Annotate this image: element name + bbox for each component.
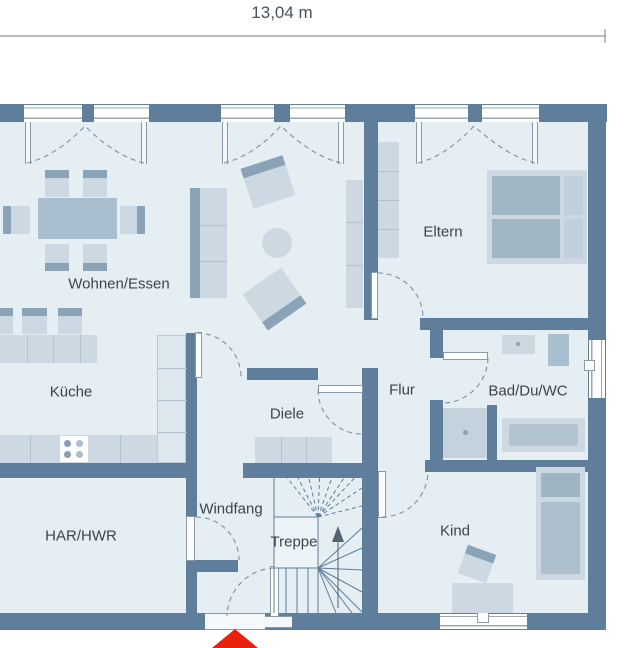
wall-diele-treppe [243,463,364,478]
window-jamb [338,122,344,164]
stove [60,436,88,462]
tall-cabinet-column [157,335,186,463]
bar-stool [22,308,47,334]
door-leaf-bad [443,352,488,360]
coffee-table [262,228,292,258]
sink [502,335,535,354]
door-leaf-eltern [371,272,378,319]
dining-chair [45,170,69,197]
desk [452,583,513,613]
sideboard [255,437,332,463]
door-leaf-diele [318,385,363,393]
entrance-door [205,613,265,630]
door-leaf-kind [378,471,386,518]
wall-shower-stub [487,405,497,462]
bar-stool [0,308,13,334]
window-jamb [416,122,422,164]
wall-flur-treppe [362,368,378,617]
door-leaf-kueche [195,332,202,378]
room-label-bad: Bad/Du/WC [488,383,567,400]
wall-bad-left-upper [430,318,443,358]
wall-eltern-bad [420,318,588,330]
toilet [548,334,569,366]
wall-bad-left-lower [430,400,443,462]
dimension-line [0,29,606,43]
floor-plan: 13,04 m [0,0,636,648]
cabinet [346,180,363,308]
dining-chair [83,170,107,197]
room-label-windfang: Windfang [199,501,262,518]
wall-har-windfang-lower [186,572,197,617]
single-bed [536,467,585,580]
window [482,105,539,122]
dining-chair [83,244,107,271]
window [290,105,345,122]
door-leaf-har [186,516,195,561]
window [221,105,274,122]
double-bed [487,170,587,264]
window-handle [584,360,595,371]
door-leaf-entrance [270,566,279,617]
wardrobe [378,142,399,258]
shelf-unit [190,188,227,298]
entrance-arrow-marker [212,629,258,648]
bar-stool [58,308,82,334]
room-label-flur: Flur [389,382,415,399]
dimension-label: 13,04 m [251,3,312,23]
window [24,105,82,122]
dining-chair [120,206,145,234]
wall-kueche-har [0,463,186,478]
room-label-kind: Kind [440,523,470,540]
wall-wohnen-diele [247,368,318,380]
window-jamb [25,122,31,164]
kitchen-island [0,335,97,363]
room-label-diele: Diele [270,406,304,423]
room-label-kueche: Küche [50,384,93,401]
room-label-treppe: Treppe [271,534,318,551]
entrance-side-panel [265,616,292,628]
window-handle [477,612,489,623]
window-jamb [532,122,538,164]
dining-chair [45,244,69,271]
room-label-wohnen-essen: Wohnen/Essen [68,276,169,293]
room-label-eltern: Eltern [423,224,462,241]
shower [443,408,487,458]
window-jamb [222,122,228,164]
window [94,105,149,122]
dining-table [38,198,117,239]
window [415,105,468,122]
room-label-har-hwr: HAR/HWR [45,528,117,545]
dining-chair [3,206,30,234]
bathtub [502,418,585,452]
window-jamb [141,122,147,164]
wall-windfang-stub [186,560,238,572]
